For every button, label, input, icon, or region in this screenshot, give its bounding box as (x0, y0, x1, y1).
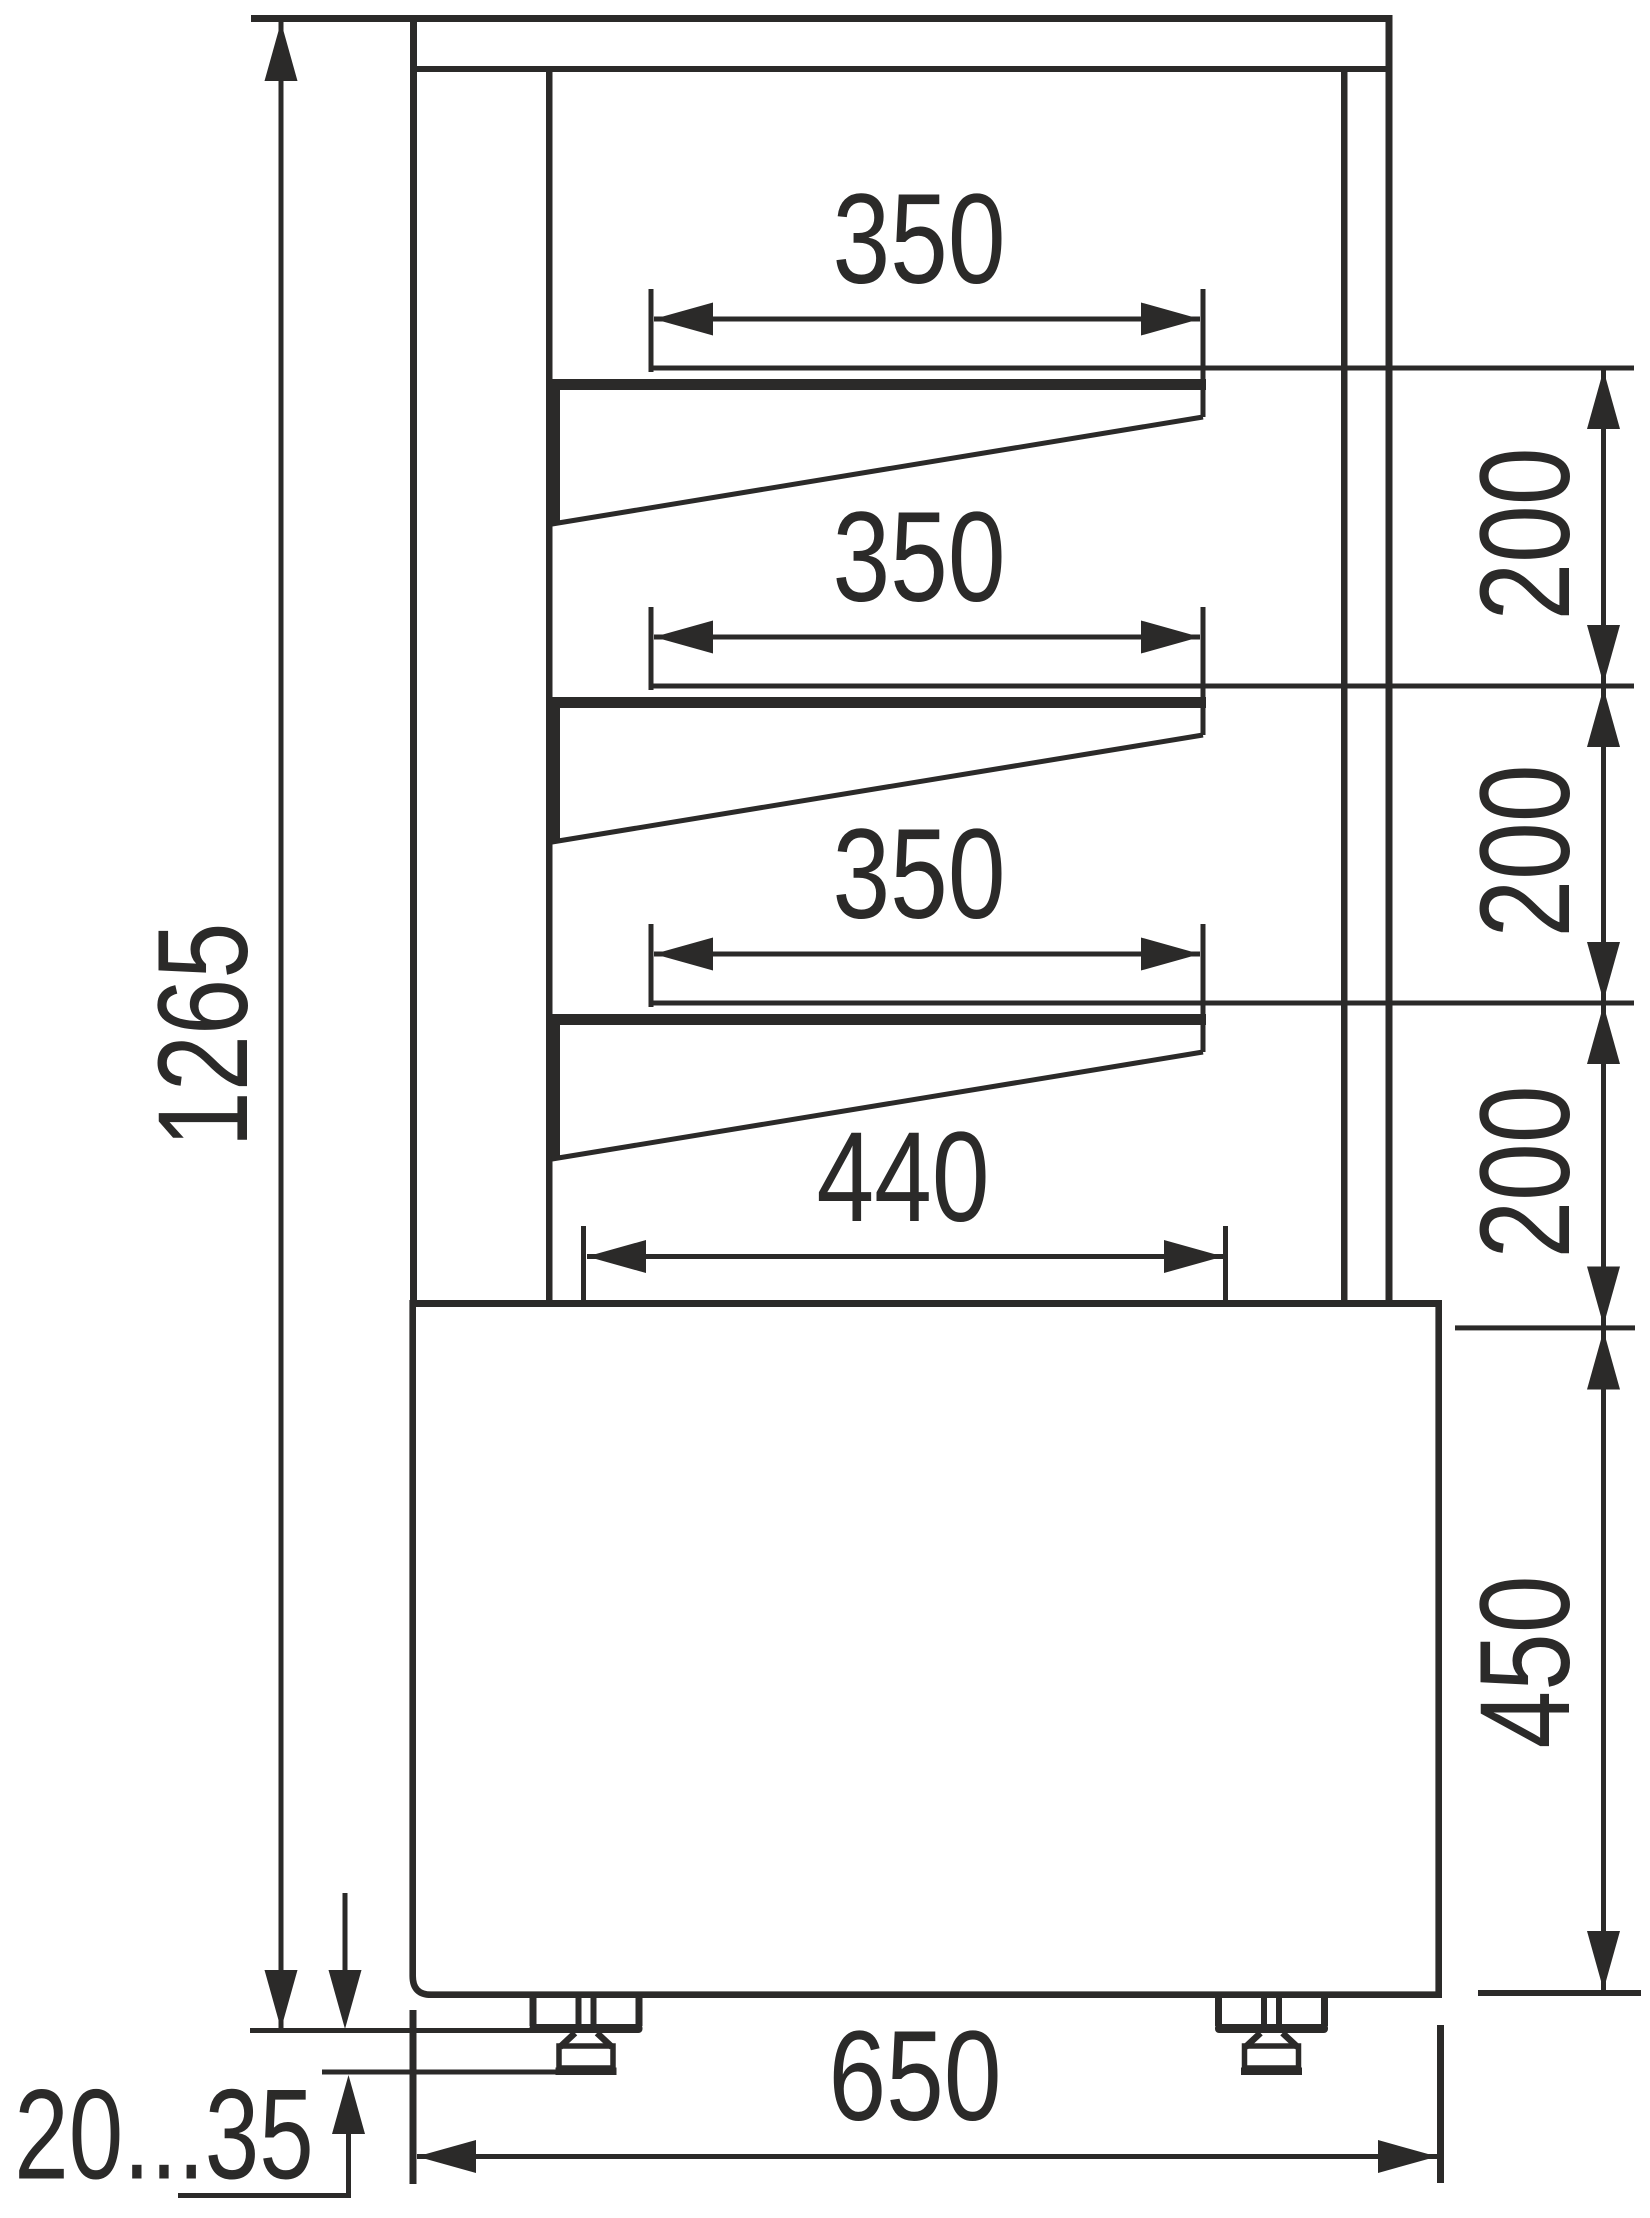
svg-text:200: 200 (1454, 448, 1597, 621)
svg-text:1265: 1265 (133, 923, 275, 1148)
svg-text:450: 450 (1454, 1576, 1597, 1749)
svg-text:350: 350 (833, 803, 1006, 946)
svg-text:650: 650 (829, 2005, 1002, 2148)
svg-text:440: 440 (817, 1106, 990, 1249)
svg-text:350: 350 (833, 168, 1006, 311)
svg-text:200: 200 (1454, 765, 1597, 938)
svg-text:350: 350 (833, 486, 1006, 629)
svg-text:200: 200 (1454, 1086, 1597, 1259)
svg-text:20...35: 20...35 (14, 2064, 313, 2207)
